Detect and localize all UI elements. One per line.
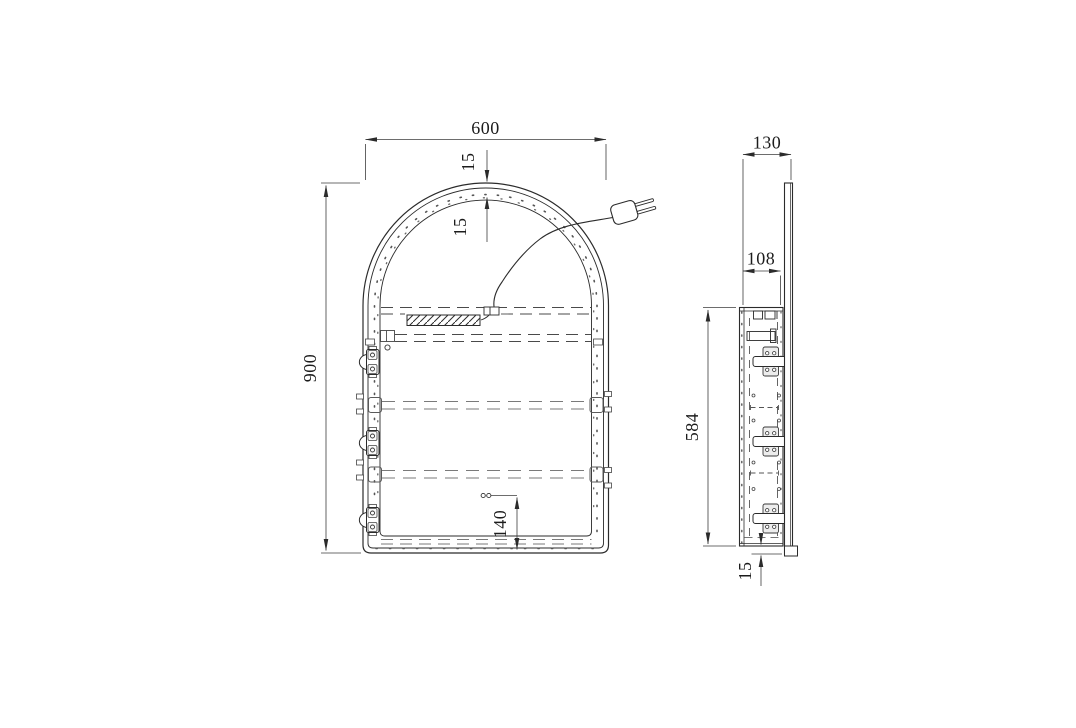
mirror-frame-line (368, 188, 604, 548)
cable-connector (484, 307, 499, 315)
led-tube-middle (369, 398, 604, 413)
power-plug-icon (610, 194, 658, 225)
driver-box (407, 315, 480, 326)
dim-side-depth: 130 (743, 133, 791, 306)
led-strip-dots-2 (378, 198, 594, 522)
dim-side-depth-label: 130 (753, 133, 782, 153)
led-strip-dots (375, 195, 598, 532)
mirror-outer-outline (363, 183, 609, 553)
led-tube-lower (369, 467, 604, 482)
dim-front-width: 600 (366, 118, 607, 180)
dim-backbox-height-label: 584 (682, 413, 702, 442)
sensor-holes (481, 493, 491, 497)
mirror-panel-profile (785, 183, 793, 555)
dim-front-height-label: 900 (300, 354, 320, 383)
front-view (357, 183, 658, 553)
dim-backbox-depth-label: 108 (747, 249, 776, 269)
dim-front-width-label: 600 (471, 118, 500, 138)
dim-sensor-height-label: 140 (490, 510, 510, 539)
dim-bottom-lip: 15 (735, 537, 782, 587)
dim-led-ring-label: 15 (450, 218, 470, 237)
dim-front-height: 900 (300, 183, 361, 553)
dim-frame-thickness: 15 (458, 150, 487, 182)
led-channel-inner-line (380, 200, 592, 536)
led-row-bottom (381, 540, 592, 545)
mounting-bracket-bottom (359, 505, 379, 536)
frame-clips (357, 339, 612, 488)
side-view (740, 183, 798, 556)
dim-frame-thickness-label: 15 (458, 153, 478, 172)
led-row-second (381, 331, 592, 342)
dim-backbox-depth: 108 (743, 249, 781, 306)
front-dimensions: 600 15 15 900 140 (300, 118, 606, 553)
dim-backbox-height: 584 (682, 308, 736, 547)
driver-box-side (747, 329, 776, 343)
cable-hole (385, 345, 390, 350)
dim-bottom-lip-label: 15 (735, 562, 755, 581)
mounting-bracket-top (359, 347, 379, 378)
hanger-tabs (754, 311, 778, 319)
mirror-panel-foot (785, 546, 798, 556)
dim-sensor-height: 140 (490, 496, 517, 550)
technical-drawing-canvas: 600 15 15 900 140 (0, 0, 1076, 728)
mounting-bracket-middle (359, 428, 379, 459)
drawing-svg: 600 15 15 900 140 (0, 0, 1076, 728)
